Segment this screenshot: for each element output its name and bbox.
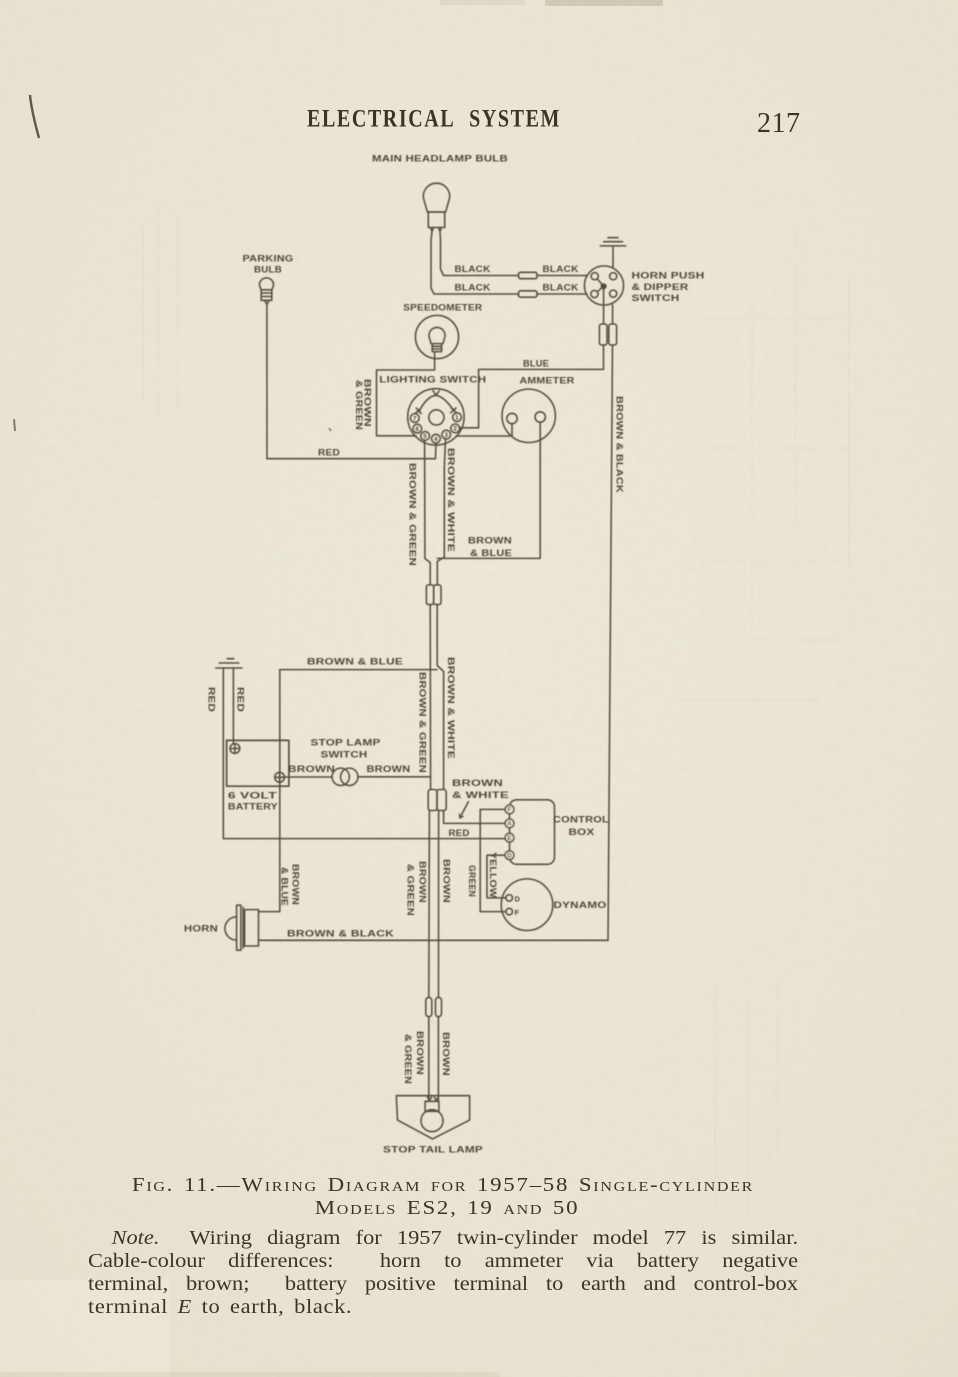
svg-text:BROWN & WHITE: BROWN & WHITE: [445, 657, 456, 759]
svg-text:CONTROL: CONTROL: [553, 815, 609, 826]
svg-text:D: D: [507, 852, 512, 859]
svg-text:HORN: HORN: [184, 924, 218, 935]
svg-text:LIGHTING SWITCH: LIGHTING SWITCH: [379, 375, 486, 386]
svg-text:DYNAMO: DYNAMO: [554, 900, 607, 911]
svg-text:BROWN: BROWN: [288, 764, 335, 775]
svg-text:6 VOLT: 6 VOLT: [228, 791, 277, 802]
svg-text:A: A: [507, 821, 512, 828]
svg-text:BULB: BULB: [254, 264, 282, 275]
svg-text:& BLUE: & BLUE: [279, 867, 290, 906]
svg-text:BATTERY: BATTERY: [228, 802, 278, 813]
svg-text:BROWN & BLUE: BROWN & BLUE: [307, 657, 403, 668]
svg-text:BLACK: BLACK: [543, 264, 579, 275]
svg-text:E: E: [507, 835, 511, 842]
svg-text:BOX: BOX: [569, 827, 595, 838]
svg-text:BROWN: BROWN: [417, 861, 428, 903]
svg-text:& WHITE: & WHITE: [452, 790, 510, 801]
svg-text:6: 6: [415, 426, 419, 433]
svg-text:& GREEN: & GREEN: [353, 380, 364, 430]
svg-text:MAIN HEADLAMP BULB: MAIN HEADLAMP BULB: [372, 154, 508, 165]
svg-text:SPEEDOMETER: SPEEDOMETER: [403, 303, 482, 314]
svg-text:RED: RED: [318, 448, 340, 459]
svg-text:BROWN: BROWN: [452, 778, 503, 789]
svg-text:STOP LAMP: STOP LAMP: [311, 738, 381, 749]
svg-text:1: 1: [455, 415, 459, 422]
svg-text:BLUE: BLUE: [523, 359, 549, 370]
svg-text:HORN PUSH: HORN PUSH: [632, 271, 705, 282]
svg-text:3: 3: [444, 432, 448, 439]
svg-text:7: 7: [413, 415, 417, 422]
svg-text:SWITCH: SWITCH: [321, 750, 368, 761]
svg-text:BROWN: BROWN: [468, 536, 512, 547]
svg-text:BLACK: BLACK: [455, 264, 491, 275]
svg-text:GREEN: GREEN: [466, 865, 477, 897]
svg-text:STOP TAIL LAMP: STOP TAIL LAMP: [383, 1145, 483, 1156]
svg-text:RED: RED: [206, 687, 217, 712]
svg-text:& DIPPER: & DIPPER: [632, 282, 689, 293]
svg-text:RED: RED: [235, 687, 246, 712]
svg-text:F: F: [508, 807, 512, 814]
svg-text:BROWN & BLACK: BROWN & BLACK: [287, 929, 394, 940]
svg-text:BLACK: BLACK: [455, 283, 491, 294]
svg-text:SWITCH: SWITCH: [632, 293, 680, 304]
svg-text:BROWN: BROWN: [290, 864, 301, 905]
svg-text:BROWN: BROWN: [414, 1031, 425, 1075]
svg-text:BLACK: BLACK: [543, 283, 579, 294]
svg-text:BROWN & WHITE: BROWN & WHITE: [445, 448, 456, 552]
svg-text:4: 4: [434, 436, 438, 443]
svg-text:YELLOW: YELLOW: [487, 852, 498, 899]
svg-text:& BLUE: & BLUE: [470, 548, 512, 559]
svg-text:2: 2: [453, 426, 457, 433]
svg-text:AMMETER: AMMETER: [520, 376, 575, 387]
svg-text:BROWN: BROWN: [367, 764, 411, 775]
svg-text:PARKING: PARKING: [243, 254, 294, 265]
svg-text:BROWN: BROWN: [440, 1032, 451, 1076]
svg-text:BROWN: BROWN: [441, 859, 452, 903]
svg-text:BROWN & GREEN: BROWN & GREEN: [416, 672, 427, 773]
svg-text:5: 5: [423, 433, 427, 440]
svg-text:D: D: [515, 894, 521, 903]
svg-text:BROWN & BLACK: BROWN & BLACK: [614, 396, 625, 493]
svg-text:& GREEN: & GREEN: [405, 864, 416, 916]
svg-text:RED: RED: [449, 828, 470, 839]
svg-text:& GREEN: & GREEN: [402, 1034, 413, 1084]
svg-text:BROWN & GREEN: BROWN & GREEN: [406, 463, 417, 566]
svg-text:F: F: [515, 908, 520, 917]
